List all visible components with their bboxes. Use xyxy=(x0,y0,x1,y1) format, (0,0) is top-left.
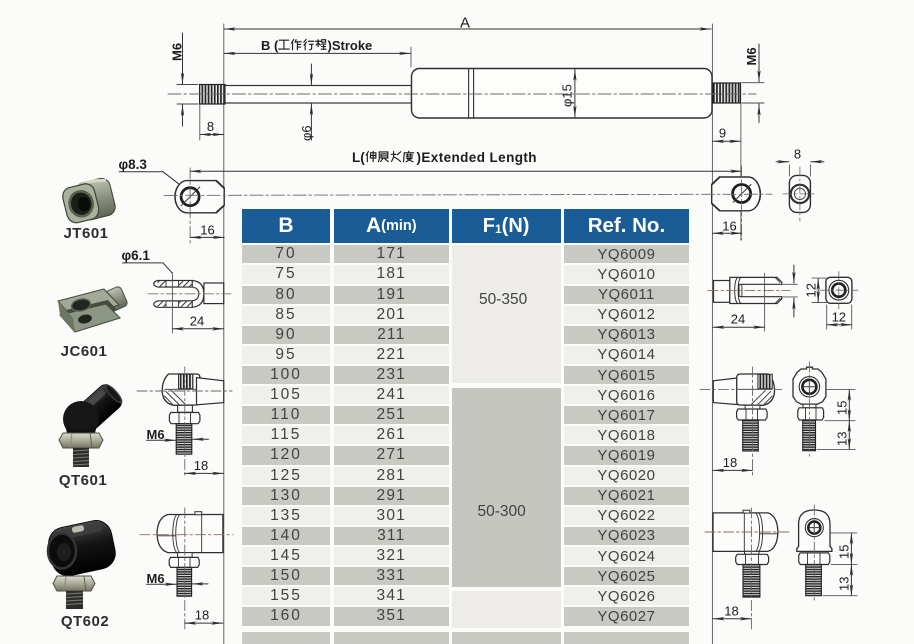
svg-text:QT601: QT601 xyxy=(59,472,107,489)
svg-text:15: 15 xyxy=(837,545,852,559)
svg-text:18: 18 xyxy=(194,458,208,473)
svg-text:M6: M6 xyxy=(147,427,165,442)
svg-text:M6: M6 xyxy=(147,571,165,586)
svg-text:8: 8 xyxy=(794,147,801,162)
svg-text:12: 12 xyxy=(832,309,846,324)
svg-text:8: 8 xyxy=(207,119,214,134)
svg-text:15: 15 xyxy=(835,401,850,415)
svg-text:L(: L( xyxy=(352,150,365,165)
svg-text:φ6: φ6 xyxy=(299,125,314,141)
svg-text:QT602: QT602 xyxy=(61,613,109,630)
svg-text:24: 24 xyxy=(190,314,204,329)
svg-text:M6: M6 xyxy=(744,47,759,65)
svg-text:18: 18 xyxy=(724,603,738,618)
svg-text:18: 18 xyxy=(723,455,737,470)
svg-text:φ6.1: φ6.1 xyxy=(122,248,151,263)
svg-text:13: 13 xyxy=(835,432,850,446)
svg-text:A: A xyxy=(460,15,470,32)
svg-text:12: 12 xyxy=(803,283,818,297)
svg-text:9: 9 xyxy=(719,126,726,141)
svg-text:16: 16 xyxy=(200,223,214,238)
svg-text:16: 16 xyxy=(722,219,736,234)
svg-text:)Stroke: )Stroke xyxy=(328,38,373,53)
svg-text:24: 24 xyxy=(731,312,745,327)
svg-text:JT601: JT601 xyxy=(63,225,108,242)
svg-text:B (: B ( xyxy=(261,38,279,53)
svg-text:)Extended Length: )Extended Length xyxy=(417,150,537,165)
svg-text:φ15: φ15 xyxy=(560,84,575,107)
svg-text:φ8.3: φ8.3 xyxy=(119,157,148,172)
svg-text:13: 13 xyxy=(837,577,852,591)
svg-text:JC601: JC601 xyxy=(61,343,108,360)
svg-text:18: 18 xyxy=(195,608,209,623)
